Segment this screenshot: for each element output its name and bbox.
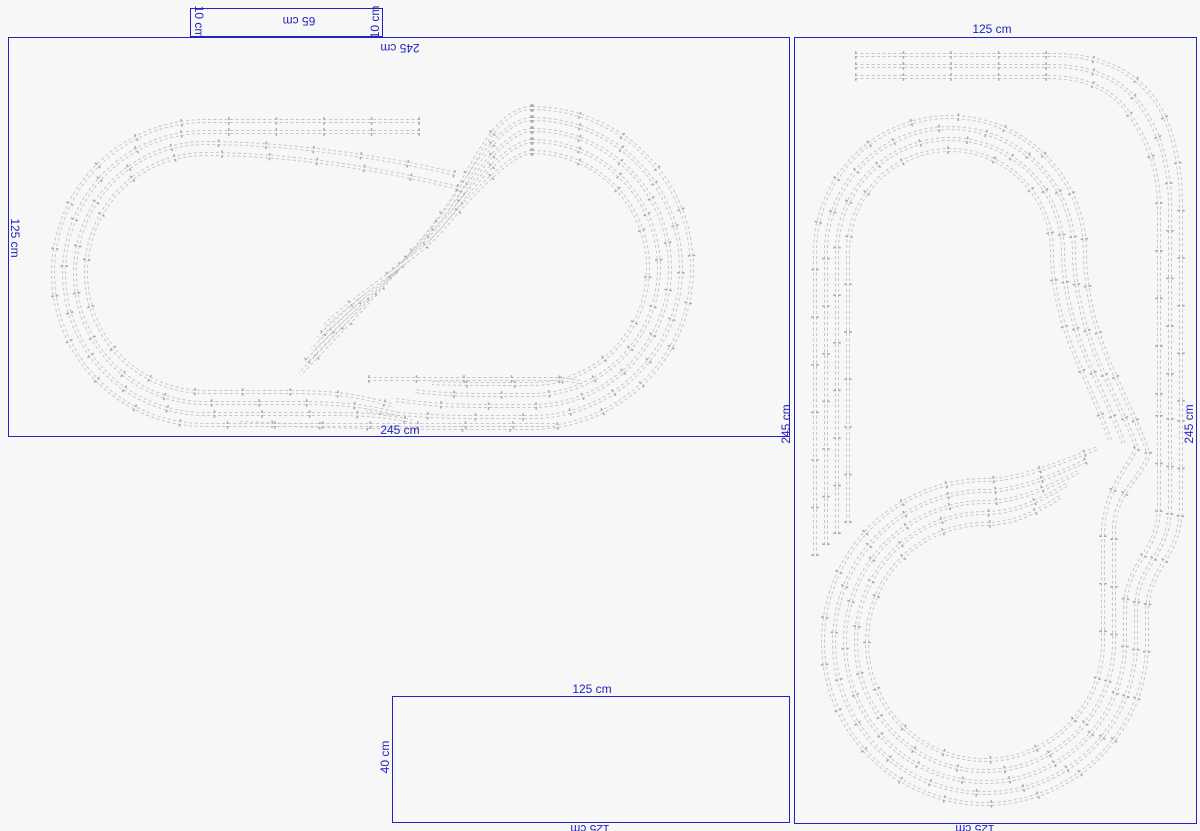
dimension-label: 65 cm xyxy=(283,15,316,27)
dimension-label: 245 cm xyxy=(780,404,792,443)
dimension-label: 245 cm xyxy=(380,42,419,54)
layout-plan-page: 65 cm10 cm10 cm245 cm125 cm245 cm245 cm2… xyxy=(0,0,1200,831)
dimension-label: 125 cm xyxy=(572,683,611,695)
main-board-245x125 xyxy=(8,37,790,437)
main-board-125x245 xyxy=(794,37,1197,824)
extension-board-125x40 xyxy=(392,696,790,823)
dimension-label: 125 cm xyxy=(9,218,21,257)
dimension-label: 245 cm xyxy=(1183,404,1195,443)
dimension-label: 125 cm xyxy=(570,823,609,831)
dimension-label: 40 cm xyxy=(379,741,391,774)
dimension-label: 125 cm xyxy=(955,823,994,831)
dimension-label: 10 cm xyxy=(369,6,381,39)
dimension-label: 125 cm xyxy=(972,23,1011,35)
dimension-label: 245 cm xyxy=(380,424,419,436)
dimension-label: 10 cm xyxy=(193,6,205,39)
